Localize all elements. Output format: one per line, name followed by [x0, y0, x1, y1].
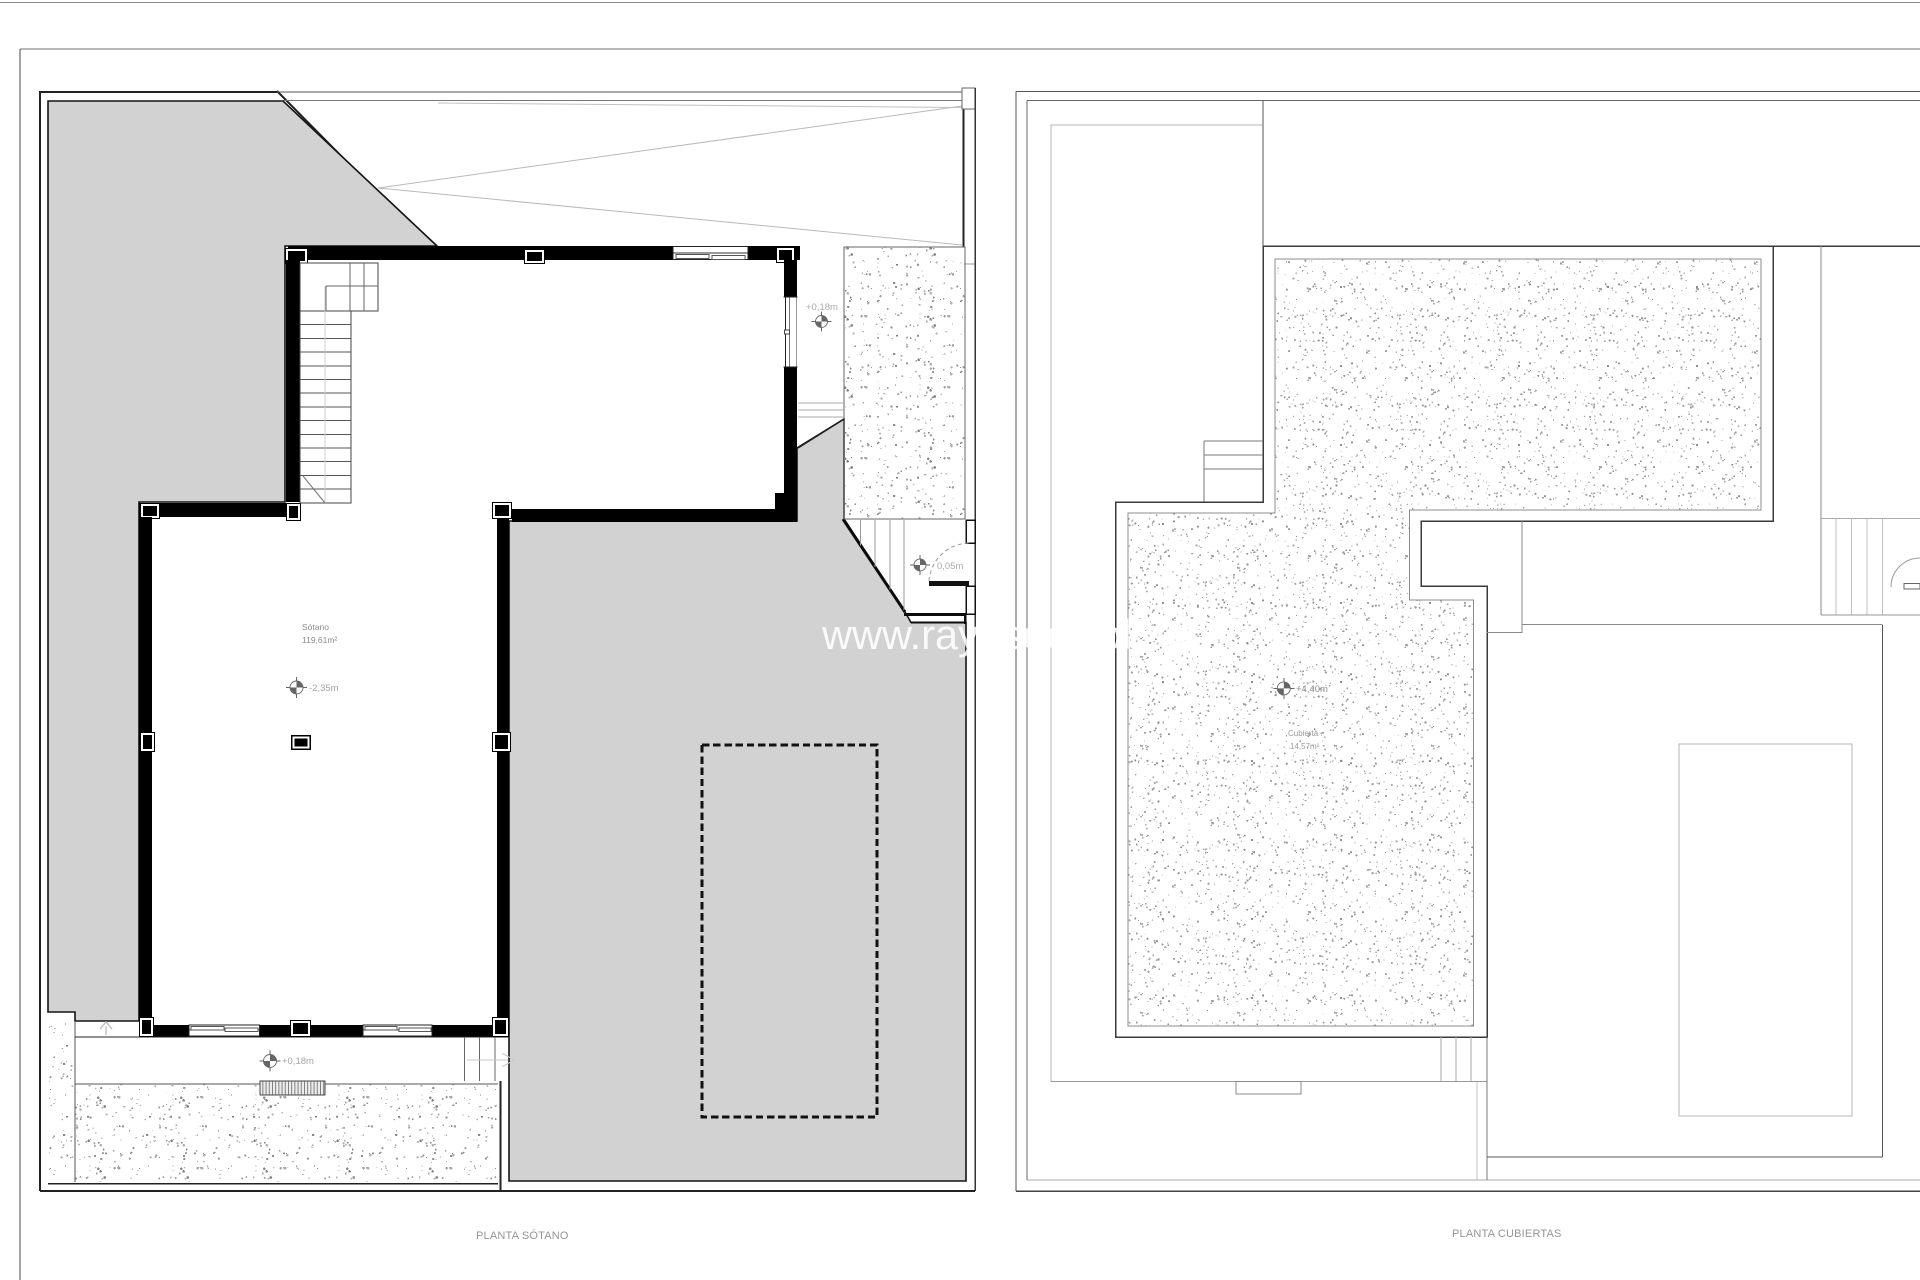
svg-text:+0,18m: +0,18m	[282, 1056, 314, 1067]
svg-text:www.rayosdelsol.com: www.rayosdelsol.com	[821, 611, 1221, 658]
svg-text:Cubierta: Cubierta	[1288, 729, 1319, 738]
svg-text:Sótano: Sótano	[302, 622, 329, 632]
svg-text:14,57m²: 14,57m²	[1290, 742, 1320, 751]
svg-text:0,05m: 0,05m	[937, 561, 963, 572]
svg-text:-2,35m: -2,35m	[309, 683, 339, 694]
svg-text:PLANTA SÓTANO: PLANTA SÓTANO	[476, 1229, 569, 1242]
svg-text:119,61m²: 119,61m²	[302, 635, 337, 645]
svg-text:PLANTA CUBIERTAS: PLANTA CUBIERTAS	[1452, 1228, 1562, 1240]
svg-text:+0,18m: +0,18m	[806, 302, 838, 313]
svg-text:+4,40m: +4,40m	[1296, 684, 1328, 695]
